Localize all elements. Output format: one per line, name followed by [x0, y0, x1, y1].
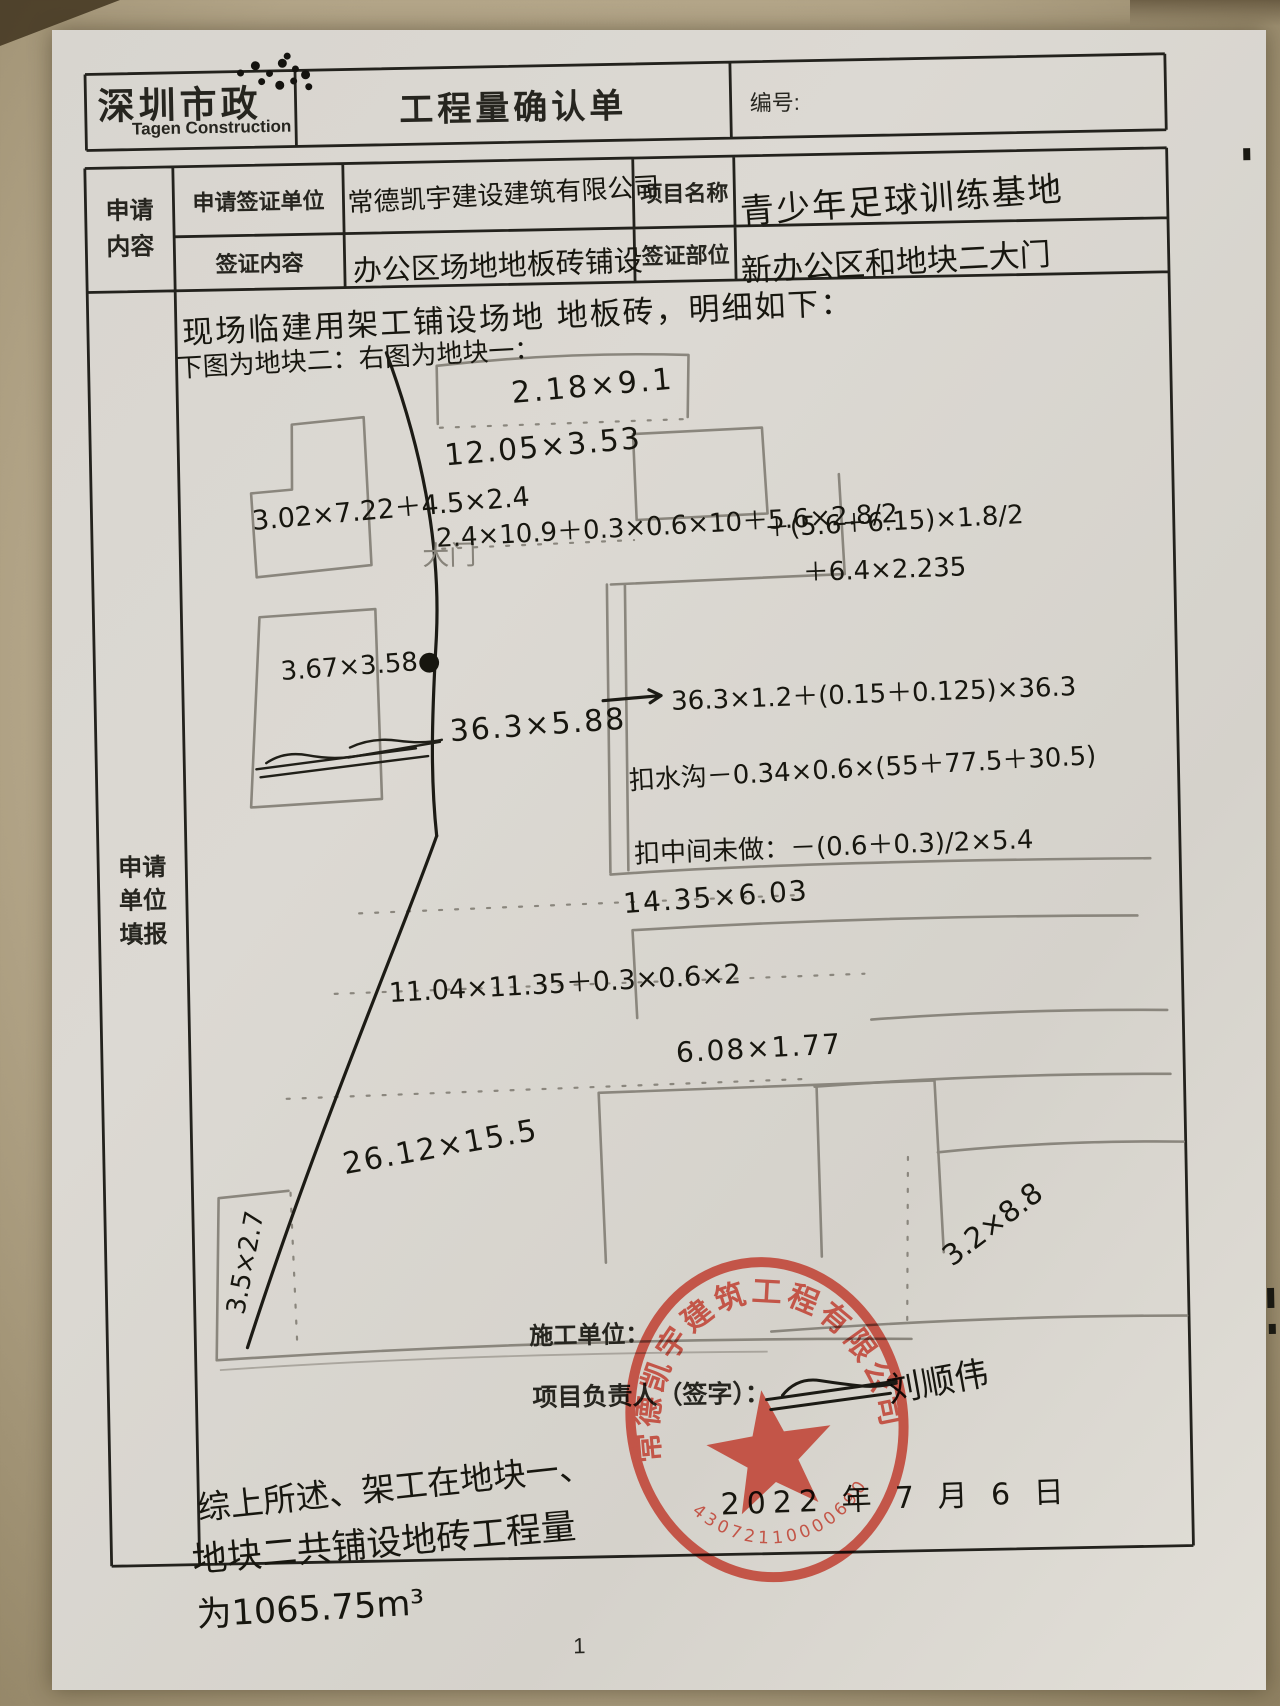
- company-stamp: 常德凯宇建筑工程有限公司 43072110000690: [605, 1242, 931, 1598]
- stamp-layer: 常德凯宇建筑工程有限公司 43072110000690: [0, 0, 1280, 1706]
- form-content: 深圳市政 Tagen Construction 工程量确认单 编号: 申请 内容…: [0, 0, 1280, 1706]
- photo-edge-marks: [1247, 148, 1273, 1334]
- stamp-star-icon: [699, 1380, 842, 1518]
- scanned-form-photo: 深圳市政 Tagen Construction 工程量确认单 编号: 申请 内容…: [0, 0, 1280, 1706]
